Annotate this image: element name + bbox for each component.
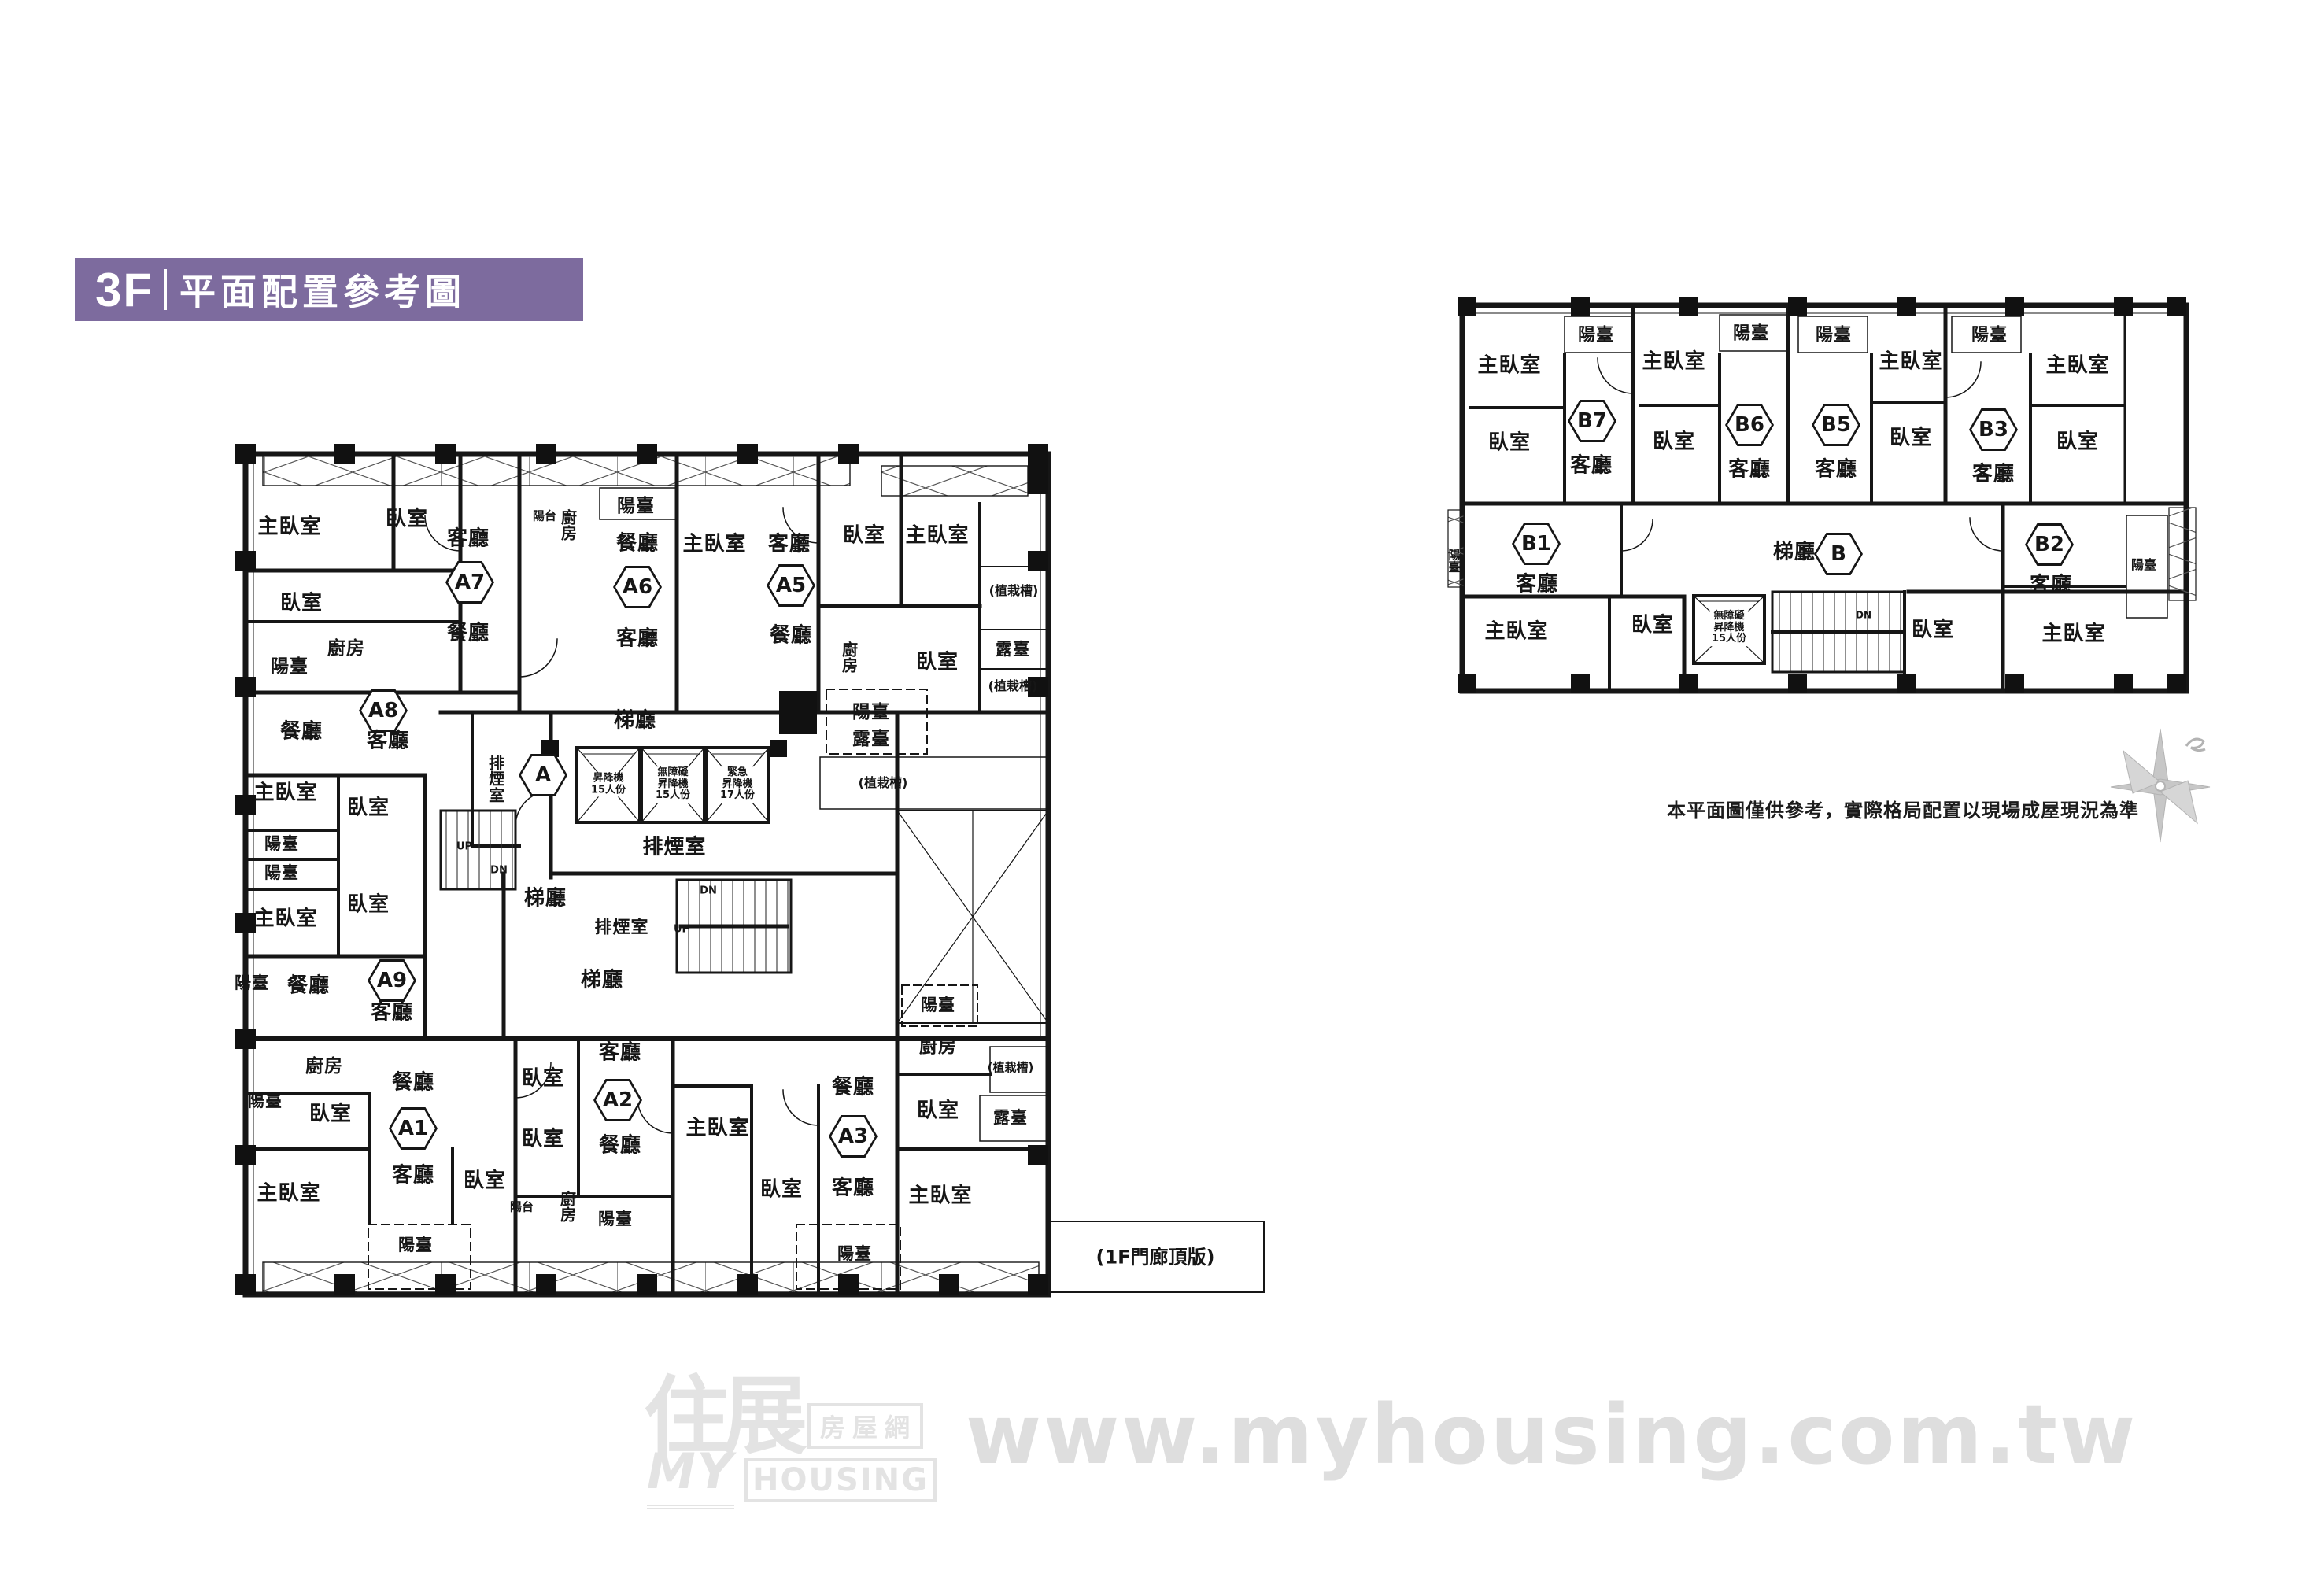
room-label: 廚 房: [560, 1191, 576, 1224]
room-label: 昇降機 15人份: [589, 772, 627, 796]
room-label: 露臺: [852, 730, 890, 750]
room-label: 主臥室: [2041, 622, 2105, 645]
compass-rose-icon: [2093, 724, 2227, 850]
unit-tag-a9: A9: [368, 959, 416, 1002]
room-label: 梯廳: [524, 887, 567, 910]
room-label: 梯廳: [581, 969, 623, 992]
page-title: 平面配置參考圖: [179, 264, 466, 316]
watermark-url: www.myhousing.com.tw: [966, 1387, 2137, 1483]
room-label: 陽臺: [852, 703, 890, 723]
room-label: (植栽槽): [859, 776, 908, 790]
unit-tag-b3: B3: [1969, 408, 2018, 451]
room-label: 臥室: [1631, 614, 1674, 637]
disclaimer-text: 本平面圖僅供參考，實際格局配置以現場成屋現況為準: [1667, 795, 2139, 822]
room-label: 露臺: [996, 641, 1030, 659]
room-label: 陽台: [510, 1201, 534, 1214]
room-label: 主臥室: [1642, 350, 1705, 373]
room-label: 排煙室: [594, 919, 648, 939]
room-label: 陽臺: [921, 996, 955, 1015]
room-label: 臥室: [1653, 430, 1695, 453]
room-label: 客廳: [1972, 463, 2015, 486]
room-label: 陽臺: [1816, 327, 1852, 346]
logo-my-text: MY: [647, 1442, 734, 1509]
room-label: DN: [700, 886, 717, 898]
unit-tag-b6: B6: [1725, 404, 1774, 446]
unit-tag-b1: B1: [1512, 523, 1561, 565]
room-label: 餐廳: [832, 1076, 874, 1099]
unit-tag-a1: A1: [389, 1107, 438, 1150]
room-label: 餐廳: [392, 1071, 434, 1094]
room-label: 客廳: [1815, 458, 1857, 481]
myhousing-logo: 住展 房屋網 MY HOUSING: [644, 1354, 947, 1516]
room-label: 緊急 昇降機 17人份: [719, 766, 756, 803]
room-label: 排煙室: [642, 836, 706, 859]
page-title-banner: 3F 平面配置參考圖: [75, 258, 583, 321]
room-label: 臥室: [916, 651, 959, 674]
room-label: 臥室: [464, 1169, 506, 1192]
room-label: 梯廳: [614, 709, 656, 732]
room-label: 主臥室: [682, 533, 746, 556]
room-label: 廚房: [327, 639, 365, 659]
room-label: 主臥室: [253, 781, 317, 804]
room-label: 主臥室: [2045, 354, 2109, 377]
room-label: 陽臺: [248, 1092, 283, 1111]
room-label: 客廳: [1728, 458, 1771, 481]
room-label: 餐廳: [287, 974, 330, 997]
room-label: 陽臺: [2131, 558, 2156, 572]
unit-tag-a6: A6: [613, 566, 662, 608]
room-label: 臥室: [1488, 431, 1531, 454]
unit-tag-a8: A8: [359, 689, 408, 732]
room-label: 主臥室: [1477, 354, 1541, 377]
room-label: (植栽槽): [989, 584, 1039, 598]
room-label: 主臥室: [685, 1117, 749, 1140]
room-label: 主臥室: [1879, 350, 1942, 373]
scanned-floor-plan-page: 3F 平面配置參考圖: [0, 0, 2324, 1581]
room-label: UP: [674, 925, 689, 936]
room-label: 廚房: [919, 1037, 957, 1058]
room-label: 臥室: [347, 796, 390, 819]
room-label: 餐廳: [447, 622, 490, 645]
room-label: 陽 臺: [1448, 550, 1460, 574]
unit-tag-a5: A5: [767, 564, 815, 607]
room-label: 餐廳: [599, 1134, 641, 1157]
unit-tag-b2: B2: [2025, 523, 2074, 566]
room-label: 臥室: [386, 508, 428, 530]
floor-plan-building-a: [223, 435, 1269, 1324]
room-label: 陽臺: [398, 1236, 433, 1255]
room-label: DN: [490, 866, 508, 877]
room-label: 臥室: [2056, 430, 2099, 453]
room-label: DN: [1856, 610, 1871, 620]
unit-tag-a2: A2: [593, 1079, 642, 1121]
room-label: 陽台: [533, 510, 556, 523]
unit-tag-a7: A7: [445, 561, 494, 604]
logo-housing-text: HOUSING: [744, 1458, 937, 1502]
room-label: 陽臺: [1578, 327, 1614, 346]
room-label: 餐廳: [280, 720, 323, 743]
porch-note: (1F門廊頂版): [1095, 1247, 1214, 1269]
room-label: 陽臺: [1733, 325, 1769, 345]
room-label: 臥室: [347, 893, 390, 916]
title-divider: [164, 269, 167, 310]
room-label: 客廳: [367, 730, 409, 752]
logo-fangwuwang-text: 房屋網: [807, 1403, 923, 1449]
room-label: 主臥室: [905, 524, 969, 547]
room-label: 臥室: [917, 1099, 959, 1122]
room-label: 客廳: [599, 1041, 641, 1064]
site-watermark: 住展 房屋網 MY HOUSING www.myhousing.com.tw: [644, 1352, 2137, 1517]
room-label: 梯廳: [1773, 541, 1816, 563]
room-label: 排 煙 室: [489, 755, 504, 803]
room-label: 臥室: [1890, 427, 1932, 449]
room-label: 主臥室: [908, 1184, 972, 1207]
room-label: 臥室: [843, 524, 885, 547]
room-label: 露臺: [993, 1109, 1028, 1128]
room-label: 餐廳: [616, 532, 659, 555]
room-label: 無障礙 昇降機 15人份: [1710, 610, 1748, 646]
unit-tag-b5: B5: [1812, 404, 1860, 446]
room-label: 臥室: [522, 1067, 564, 1090]
room-label: 客廳: [371, 1001, 413, 1024]
room-label: 陽臺: [264, 835, 299, 854]
room-label: 廚 房: [561, 510, 577, 542]
room-label: 客廳: [1570, 454, 1613, 477]
room-label: 臥室: [280, 592, 323, 615]
room-label: 客廳: [1516, 573, 1558, 596]
room-label: 陽臺: [837, 1245, 872, 1264]
room-label: 客廳: [832, 1177, 874, 1199]
room-label: 陽臺: [235, 974, 269, 993]
room-label: (植栽槽): [988, 1062, 1034, 1075]
room-label: 主臥室: [1484, 620, 1548, 643]
room-label: 陽臺: [271, 657, 309, 678]
unit-tag-b: B: [1814, 533, 1863, 575]
room-label: 臥室: [760, 1178, 803, 1201]
room-label: 臥室: [522, 1128, 564, 1151]
room-label: 廚 房: [842, 642, 858, 674]
room-label: 主臥室: [257, 515, 321, 538]
room-label: 陽臺: [1971, 327, 2008, 346]
room-label: 臥室: [309, 1103, 352, 1125]
room-label: 陽臺: [598, 1210, 633, 1229]
room-label: 無障礙 昇降機 15人份: [654, 766, 692, 803]
room-label: 客廳: [392, 1164, 434, 1187]
floor-label: 3F: [95, 263, 153, 317]
room-label: (植栽槽): [988, 679, 1038, 693]
unit-tag-a: A: [519, 754, 567, 796]
unit-tag-b7: B7: [1568, 400, 1616, 442]
unit-tag-a3: A3: [829, 1115, 878, 1158]
room-label: UP: [456, 842, 472, 854]
room-label: 陽臺: [617, 497, 655, 517]
room-label: 主臥室: [253, 907, 317, 930]
room-label: 餐廳: [770, 624, 812, 647]
room-label: 客廳: [768, 533, 811, 556]
room-label: 臥室: [1912, 619, 1954, 641]
room-label: 客廳: [616, 627, 659, 650]
room-label: 廚房: [305, 1057, 343, 1077]
room-label: 客廳: [2030, 574, 2072, 597]
room-label: 陽臺: [264, 864, 299, 883]
room-label: 主臥室: [257, 1182, 320, 1205]
room-label: 客廳: [447, 527, 490, 550]
